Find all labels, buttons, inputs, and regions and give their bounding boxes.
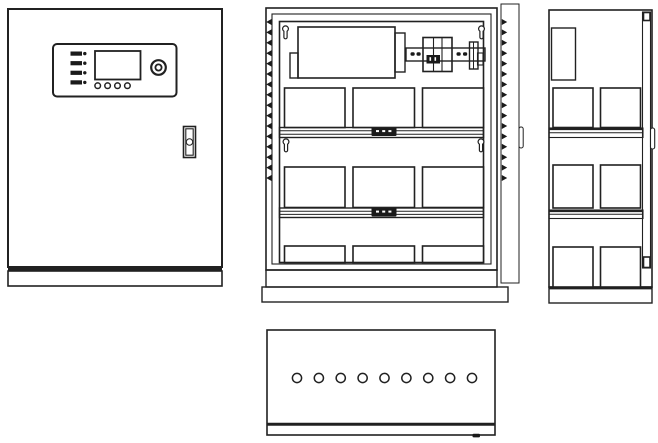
round-indicator-icon (151, 60, 166, 75)
bottom-view (267, 330, 495, 437)
gasket-tooth-icon (266, 165, 271, 171)
battery-cell-side (553, 247, 593, 287)
drawing-canvas (0, 0, 658, 443)
mounting-keyhole-icon (283, 26, 289, 39)
cable-entry-hole-icon (336, 373, 345, 382)
battery-cell (423, 167, 484, 208)
gasket-tooth-icon (266, 123, 271, 129)
breaker-toggle-icon (427, 55, 441, 64)
terminal-block-dash (388, 211, 391, 213)
side-handle-bump (651, 128, 655, 149)
breaker-toggle-tick (430, 57, 432, 61)
battery-cell-side (601, 165, 641, 208)
power-supply-unit (298, 27, 395, 78)
breaker-toggle-tick (435, 57, 437, 61)
cable-entry-hole-icon (424, 373, 433, 382)
door-lock-icon (186, 139, 192, 145)
battery-cell-side (553, 88, 593, 128)
cable-hole-group (292, 373, 476, 382)
terminal-block-dash (376, 211, 379, 213)
status-led-dot-icon (83, 71, 86, 74)
side-door-edge-strip (643, 12, 651, 268)
panel-button-group (95, 83, 130, 89)
terminal-block-dash (382, 211, 385, 213)
gasket-tooth-icon (266, 175, 271, 181)
power-supply-tab-right (395, 33, 405, 72)
power-supply-tab-left (290, 53, 298, 78)
frame-outer (266, 8, 497, 270)
gasket-tooth-icon (266, 50, 271, 56)
battery-cell (423, 88, 484, 128)
door-edge-handle-bump (519, 127, 523, 148)
side-battery-grid (553, 88, 641, 287)
battery-cell (353, 246, 415, 263)
battery-cell-side (601, 247, 641, 287)
mounting-keyhole-icon (283, 139, 289, 152)
cable-entry-hole-icon (402, 373, 411, 382)
gasket-tooth-icon (266, 61, 271, 67)
mounting-keyhole-icon (479, 26, 485, 39)
cable-entry-hole-icon (292, 373, 301, 382)
cable-entry-hole-icon (314, 373, 323, 382)
din-rail-slot-icon (457, 52, 461, 55)
cable-entry-hole-icon (380, 373, 389, 382)
technical-drawing (0, 0, 658, 443)
internal-base-upper (266, 270, 497, 287)
side-view (549, 10, 655, 303)
panel-button (125, 83, 131, 89)
status-led-bar-icon (71, 52, 83, 56)
battery-cell (423, 246, 484, 263)
gasket-tooth-icon (266, 71, 271, 77)
gasket-tooth-icon (266, 29, 271, 35)
status-led-dot-icon (83, 62, 86, 65)
status-led-dot-icon (83, 52, 86, 55)
bottom-panel-body (267, 330, 495, 435)
battery-cell (285, 246, 346, 263)
lcd-display (95, 51, 141, 80)
side-door-cap-top (644, 13, 651, 21)
gasket-tooth-icon (266, 40, 271, 46)
side-power-supply-box (552, 28, 576, 80)
gasket-tooth-icon (266, 81, 271, 87)
round-indicator-center-icon (155, 64, 161, 70)
drain-notch-icon (473, 434, 481, 438)
battery-cell-side (601, 88, 641, 128)
front-cabinet-body (8, 9, 222, 267)
status-led-bar-icon (71, 71, 83, 75)
battery-cell (353, 167, 415, 208)
status-led-bar-icon (71, 80, 83, 84)
front-cabinet-base (8, 271, 222, 286)
gasket-tooth-icon (266, 92, 271, 98)
cable-entry-hole-icon (446, 373, 455, 382)
internal-base-lower (262, 287, 508, 302)
circuit-breaker-body (423, 38, 452, 72)
status-led-bar-icon (71, 61, 83, 65)
gasket-tooth-icon (266, 102, 271, 108)
din-rail-slot-icon (417, 52, 421, 55)
cable-entry-hole-icon (358, 373, 367, 382)
terminal-block-dash (382, 130, 385, 132)
panel-button (115, 83, 121, 89)
gasket-tooth-icon (266, 19, 271, 25)
battery-cell (353, 88, 415, 128)
terminal-block-dash (388, 130, 391, 132)
side-door-cap-bottom (644, 257, 651, 268)
status-led-dot-icon (83, 81, 86, 84)
gasket-tooth-icon (266, 133, 271, 139)
status-led-group (71, 52, 87, 85)
din-rail-slot-icon (463, 52, 467, 55)
battery-cell (285, 88, 346, 128)
battery-grid (285, 88, 484, 263)
open-door-panel (501, 4, 519, 283)
mounting-keyhole-icon (478, 139, 484, 152)
gasket-teeth-left (266, 19, 271, 181)
front-view (8, 9, 222, 286)
cable-entry-hole-icon (467, 373, 476, 382)
din-rail-slot-icon (411, 52, 415, 55)
gasket-tooth-icon (266, 113, 271, 119)
battery-cell (285, 167, 346, 208)
frame-middle (272, 14, 491, 264)
panel-button (95, 83, 101, 89)
gasket-tooth-icon (266, 154, 271, 160)
panel-button (105, 83, 111, 89)
battery-cell-side (553, 165, 593, 208)
internal-view (262, 4, 523, 302)
terminal-block-dash (376, 130, 379, 132)
side-cabinet-body (549, 10, 652, 287)
door-handle-inner (186, 129, 193, 155)
gasket-tooth-icon (266, 144, 271, 150)
frame-inner (280, 22, 484, 263)
